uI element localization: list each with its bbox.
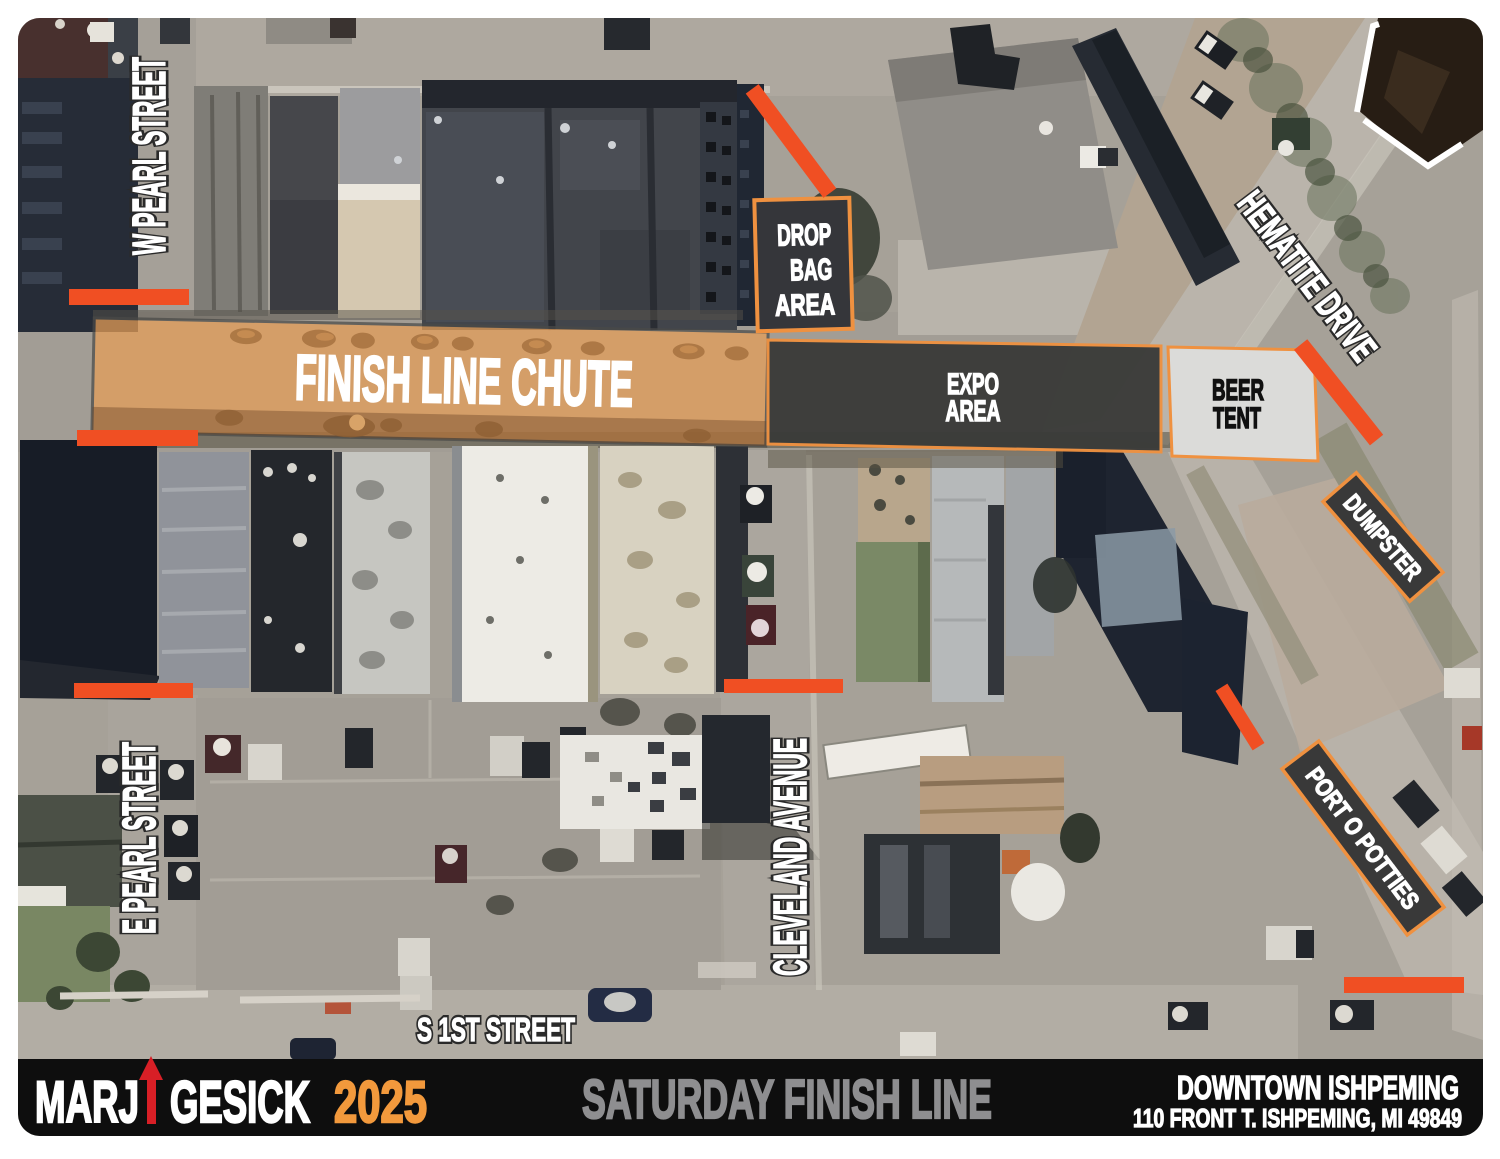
svg-text:E PEARL STREET: E PEARL STREET <box>113 742 165 934</box>
svg-text:AREA: AREA <box>775 288 836 323</box>
svg-text:DROP: DROP <box>777 218 832 252</box>
svg-text:TENT: TENT <box>1213 402 1261 435</box>
svg-text:S 1ST STREET: S 1ST STREET <box>417 1011 575 1048</box>
svg-text:GESICK: GESICK <box>170 1070 310 1135</box>
svg-text:MARJ: MARJ <box>35 1070 139 1135</box>
svg-text:BAG: BAG <box>790 253 833 287</box>
svg-text:FINISH LINE CHUTE: FINISH LINE CHUTE <box>294 341 633 420</box>
svg-text:CLEVELAND AVENUE: CLEVELAND AVENUE <box>764 738 816 976</box>
svg-text:DOWNTOWN ISHPEMING: DOWNTOWN ISHPEMING <box>1177 1069 1459 1106</box>
svg-text:110 FRONT T. ISHPEMING, MI 498: 110 FRONT T. ISHPEMING, MI 49849 <box>1133 1103 1462 1133</box>
svg-text:AREA: AREA <box>946 395 1001 428</box>
svg-text:2025: 2025 <box>334 1070 427 1135</box>
svg-text:SATURDAY FINISH LINE: SATURDAY FINISH LINE <box>582 1068 992 1130</box>
svg-text:W PEARL STREET: W PEARL STREET <box>123 57 175 255</box>
